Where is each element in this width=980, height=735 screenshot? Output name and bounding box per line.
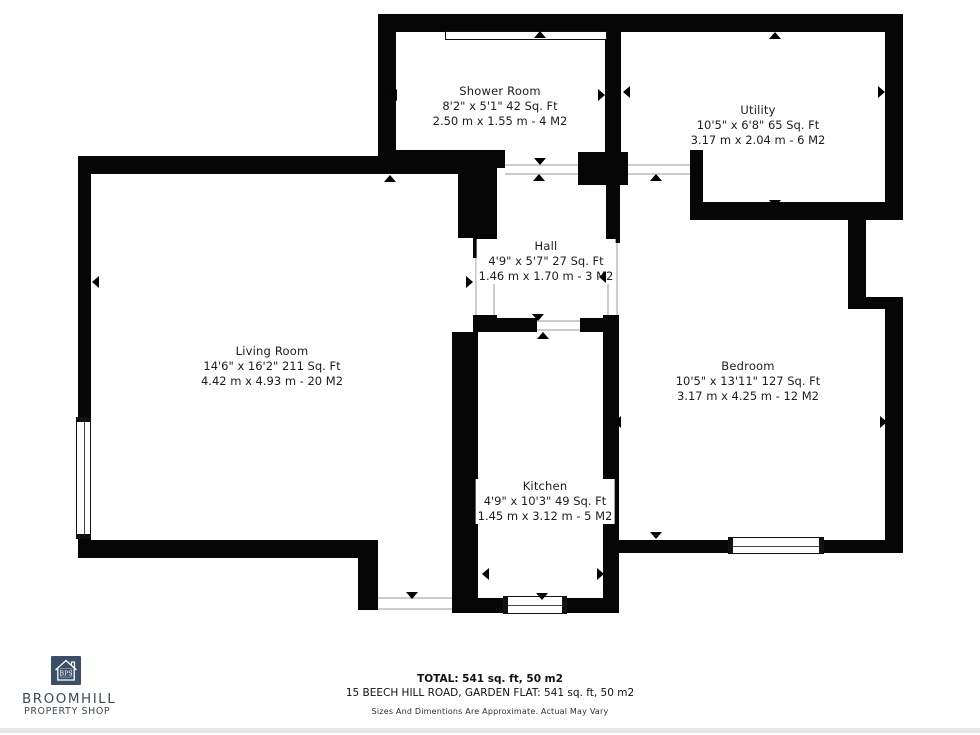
door-opening-utility bbox=[628, 164, 690, 166]
room-dim-metric: 2.50 m x 1.55 m - 4 M2 bbox=[433, 114, 568, 129]
arrow-utility-top-icon bbox=[769, 32, 781, 39]
wall-shower-left bbox=[378, 14, 396, 160]
window-bedroom bbox=[728, 537, 824, 554]
arrow-shower-right-icon bbox=[598, 89, 605, 101]
footer-address: 15 BEECH HILL ROAD, GARDEN FLAT: 541 sq.… bbox=[0, 686, 980, 700]
arrow-bedroom-right-icon bbox=[880, 416, 887, 428]
house-icon: BPS bbox=[51, 656, 81, 685]
room-dim-imperial: 10'5" x 13'11" 127 Sq. Ft bbox=[676, 374, 821, 389]
wall-center-junction bbox=[578, 152, 628, 185]
arrow-shower-left-icon bbox=[390, 89, 397, 101]
room-name: Living Room bbox=[201, 344, 343, 359]
room-label-utility: Utility 10'5" x 6'8" 65 Sq. Ft 3.17 m x … bbox=[689, 103, 828, 148]
room-name: Shower Room bbox=[433, 84, 568, 99]
room-label-shower: Shower Room 8'2" x 5'1" 42 Sq. Ft 2.50 m… bbox=[431, 84, 570, 129]
footer-disclaimer: Sizes And Dimentions Are Approximate. Ac… bbox=[0, 707, 980, 716]
wall-kitchen-left bbox=[452, 332, 478, 613]
room-label-hall: Hall 4'9" x 5'7" 27 Sq. Ft 1.46 m x 1.70… bbox=[477, 239, 616, 284]
wall-shower-utility-divider bbox=[605, 32, 621, 153]
arrow-utility-left-icon bbox=[623, 86, 630, 98]
arrow-living-top-icon bbox=[384, 175, 396, 182]
room-label-kitchen: Kitchen 4'9" x 10'3" 49 Sq. Ft 1.45 m x … bbox=[476, 479, 615, 524]
arrow-living-left-icon bbox=[92, 276, 99, 288]
window-shower-recess bbox=[445, 31, 607, 40]
arrow-kitchen-right-icon bbox=[597, 568, 604, 580]
arrow-bedroom-left-icon bbox=[614, 416, 621, 428]
wall-kitchen-bottom-left bbox=[452, 598, 503, 613]
room-dim-metric: 1.46 m x 1.70 m - 3 M2 bbox=[479, 269, 614, 284]
wall-bedroom-notch-vertical bbox=[848, 218, 866, 300]
room-dim-metric: 4.42 m x 4.93 m - 20 M2 bbox=[201, 374, 343, 389]
arrow-shower-bottom-icon bbox=[534, 158, 546, 165]
room-name: Utility bbox=[691, 103, 826, 118]
footer: TOTAL: 541 sq. ft, 50 m2 15 BEECH HILL R… bbox=[0, 672, 980, 716]
room-label-living-room: Living Room 14'6" x 16'2" 211 Sq. Ft 4.4… bbox=[199, 344, 345, 389]
arrow-kitchen-left-icon bbox=[482, 568, 489, 580]
room-dim-imperial: 14'6" x 16'2" 211 Sq. Ft bbox=[201, 359, 343, 374]
wall-living-bottom bbox=[78, 540, 373, 558]
arrow-bedroom-bottom-icon bbox=[650, 532, 662, 539]
floorplan-page: Shower Room 8'2" x 5'1" 42 Sq. Ft 2.50 m… bbox=[0, 0, 980, 735]
wall-utility-bottom bbox=[690, 202, 903, 220]
arrow-shower-top-icon bbox=[534, 31, 546, 38]
wall-living-top bbox=[78, 156, 497, 174]
room-dim-imperial: 10'5" x 6'8" 65 Sq. Ft bbox=[691, 118, 826, 133]
room-name: Hall bbox=[479, 239, 614, 254]
room-dim-imperial: 4'9" x 5'7" 27 Sq. Ft bbox=[479, 254, 614, 269]
room-dim-imperial: 4'9" x 10'3" 49 Sq. Ft bbox=[478, 494, 613, 509]
room-dim-metric: 3.17 m x 2.04 m - 6 M2 bbox=[691, 133, 826, 148]
arrow-living-bottom-icon bbox=[406, 592, 418, 599]
arrow-kitchen-top-icon bbox=[537, 332, 549, 339]
room-dim-imperial: 8'2" x 5'1" 42 Sq. Ft bbox=[433, 99, 568, 114]
room-label-bedroom: Bedroom 10'5" x 13'11" 127 Sq. Ft 3.17 m… bbox=[674, 359, 823, 404]
door-opening-entrance bbox=[378, 608, 452, 610]
wall-hall-left-upper bbox=[458, 156, 497, 238]
door-opening-hall-bedroom bbox=[616, 243, 618, 315]
arrow-kitchen-bottom-icon bbox=[536, 593, 548, 600]
logo-name: BROOMHILL bbox=[22, 691, 116, 707]
room-dim-metric: 1.45 m x 3.12 m - 5 M2 bbox=[478, 509, 613, 524]
logo-tagline: PROPERTY SHOP bbox=[24, 706, 110, 717]
house-logo-icon: BPS bbox=[51, 656, 81, 685]
wall-entrance-step bbox=[358, 540, 378, 610]
arrow-utility-right-icon bbox=[878, 86, 885, 98]
wall-kitchen-bottom-right bbox=[567, 598, 619, 613]
room-name: Bedroom bbox=[676, 359, 821, 374]
arrow-hall-left-icon bbox=[466, 276, 473, 288]
wall-kitchen-bedroom-divider bbox=[603, 315, 619, 613]
footer-total: TOTAL: 541 sq. ft, 50 m2 bbox=[0, 672, 980, 686]
page-edge-shadow bbox=[0, 728, 980, 733]
arrow-bedroom-top-icon bbox=[650, 174, 662, 181]
room-dim-metric: 3.17 m x 4.25 m - 12 M2 bbox=[676, 389, 821, 404]
window-kitchen bbox=[503, 596, 567, 614]
arrow-hall-right-icon bbox=[599, 271, 606, 283]
logo-initials: BPS bbox=[60, 671, 73, 678]
wall-hall-bottom-left bbox=[473, 318, 537, 332]
arrow-utility-bottom-icon bbox=[769, 200, 781, 207]
wall-bedroom-bottom-left bbox=[619, 540, 728, 553]
room-name: Kitchen bbox=[478, 479, 613, 494]
window-living-room bbox=[76, 417, 91, 539]
arrow-hall-bottom-icon bbox=[532, 314, 544, 321]
wall-utility-right bbox=[885, 14, 903, 220]
wall-bedroom-right bbox=[885, 297, 903, 553]
arrow-hall-top-icon bbox=[533, 174, 545, 181]
wall-top bbox=[378, 14, 903, 32]
wall-hall-right bbox=[606, 185, 620, 243]
door-opening-hall-kitchen bbox=[537, 329, 580, 331]
